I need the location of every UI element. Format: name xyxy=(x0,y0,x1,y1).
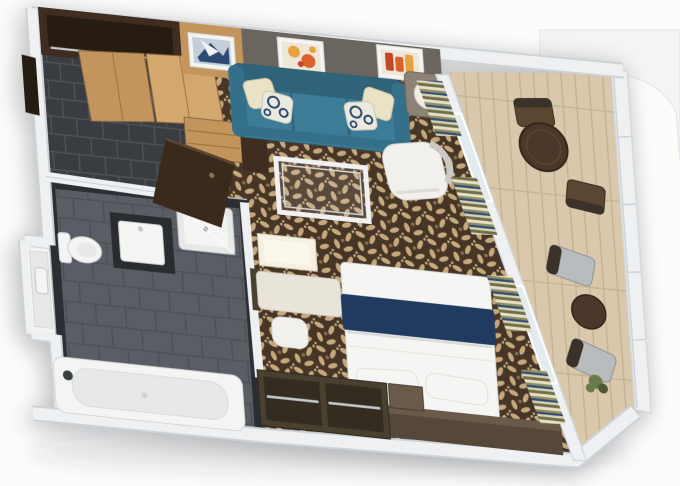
nightstand xyxy=(388,384,424,411)
sink-vanity xyxy=(110,212,176,274)
coffee-table xyxy=(276,158,369,221)
stateroom-floorplan-render xyxy=(0,0,680,486)
wall-art-blue xyxy=(188,33,236,72)
suite xyxy=(4,3,656,481)
desk-stool xyxy=(271,316,309,350)
balcony-chair-back xyxy=(513,99,552,108)
alcove-sink xyxy=(35,267,49,294)
floorplan-canvas xyxy=(0,0,680,486)
sofa-pillow-patterned xyxy=(343,101,378,130)
